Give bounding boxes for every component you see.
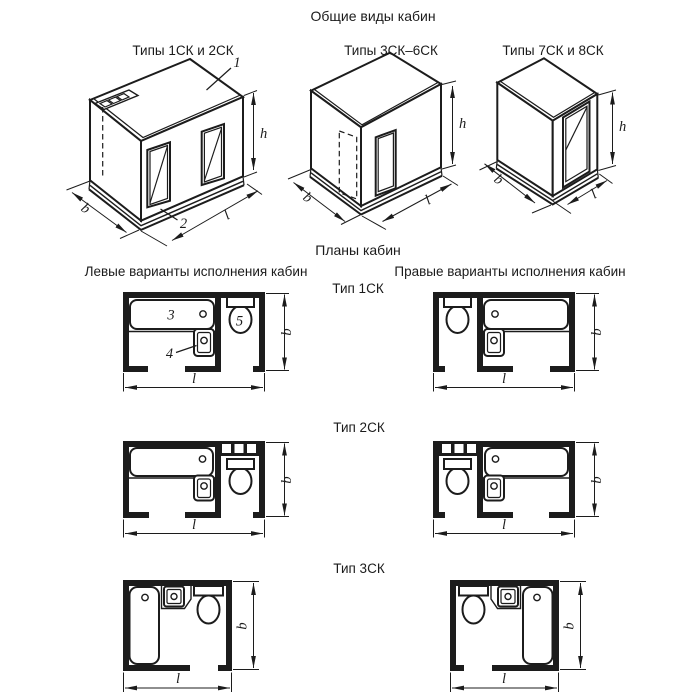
dim-label-b: b [562, 622, 578, 629]
callout-base: 2 [180, 216, 187, 232]
drawing-sheet: 1 2 h b l [0, 0, 700, 700]
type-2sk-label: Тип 2СК [333, 420, 384, 435]
diagram-canvas: 1 2 h b l [0, 0, 700, 700]
dim-label-l: l [192, 371, 196, 387]
dim-label-l: l [192, 517, 196, 533]
door-front [376, 130, 396, 196]
dimension-h: h [442, 81, 466, 169]
plan-2sk-right [433, 441, 575, 518]
dimension-h: h [598, 90, 626, 171]
iso-view-types-7sk-8sk: h b l [480, 58, 627, 213]
dim-label-l: l [502, 517, 506, 533]
plan-3sk-right [450, 580, 559, 671]
dim-label-l: l [502, 371, 506, 387]
dim-label-b: b [589, 476, 605, 483]
plan-3sk-left [123, 580, 232, 671]
dim-label-b: b [589, 328, 605, 335]
dim-label-h: h [459, 116, 466, 132]
plan-1sk-right [433, 292, 575, 372]
plan-2sk-left [123, 441, 265, 518]
type-1sk-label: Тип 1СК [332, 281, 383, 296]
right-variants-header: Правые варианты исполнения кабин [394, 264, 625, 279]
callout-toilet: 5 [236, 314, 243, 330]
dim-label-h: h [260, 126, 267, 142]
door-right [202, 124, 224, 185]
iso-label-3sk-6sk: Типы 3СК–6СК [344, 43, 438, 58]
iso-view-types-3sk-6sk: h b l [288, 53, 466, 230]
plans-title: Планы кабин [315, 242, 401, 258]
dim-label-b: b [491, 171, 507, 188]
page-title: Общие виды кабин [310, 8, 435, 24]
iso-view-types-1sk-2sk: 1 2 h b l [67, 55, 268, 246]
door-front [563, 102, 590, 188]
callout-bathtub: 3 [166, 308, 174, 324]
dim-label-l: l [221, 208, 232, 224]
door-left [147, 142, 170, 207]
type-3sk-label: Тип 3СК [333, 561, 384, 576]
dimension-h: h [244, 91, 267, 178]
dim-label-l: l [588, 187, 600, 203]
dim-label-b: b [235, 622, 251, 629]
dim-label-b: b [279, 476, 295, 483]
dim-label-h: h [619, 119, 626, 135]
iso-label-7sk-8sk: Типы 7СК и 8СК [502, 43, 603, 58]
dim-label-b: b [300, 189, 315, 206]
callout-roof: 1 [233, 55, 240, 71]
dim-label-l: l [176, 671, 180, 687]
dim-label-l: l [502, 671, 506, 687]
dim-label-b: b [279, 328, 295, 335]
plan-1sk-left [123, 292, 265, 372]
callout-washbasin: 4 [166, 346, 173, 362]
dim-label-b: b [78, 200, 93, 217]
left-variants-header: Левые варианты исполнения кабин [85, 264, 308, 279]
iso-label-1sk-2sk: Типы 1СК и 2СК [132, 43, 233, 58]
